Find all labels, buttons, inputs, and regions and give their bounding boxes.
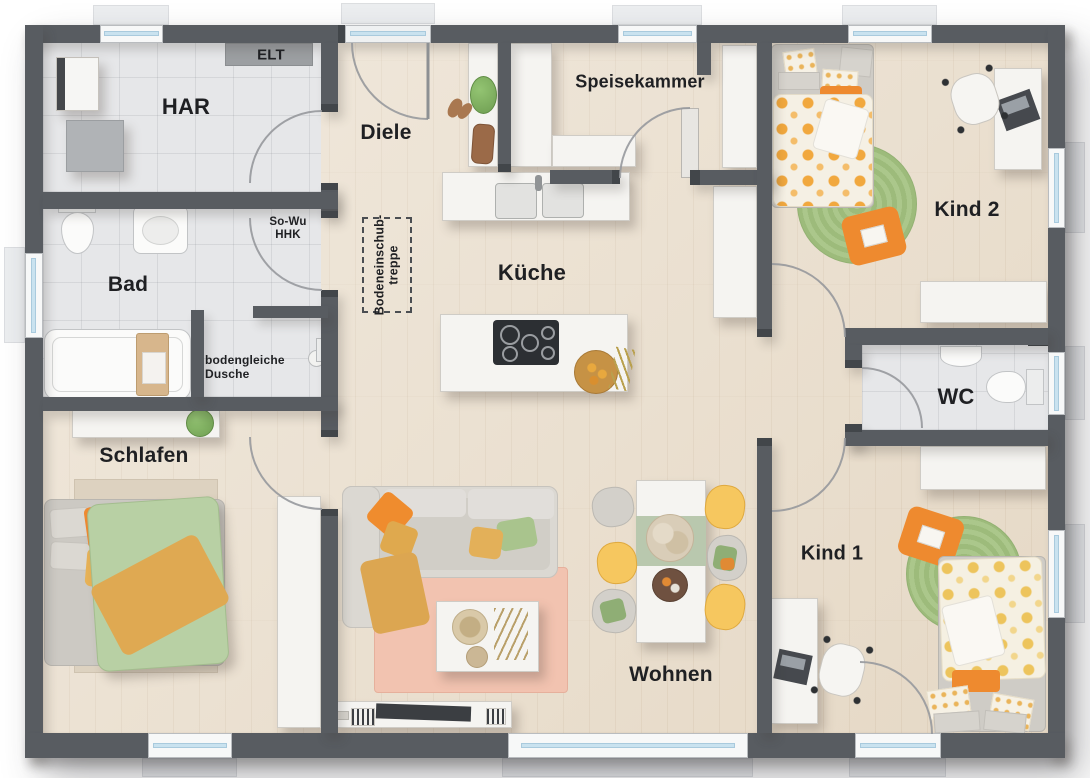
door-jamb — [757, 329, 772, 337]
shower-partition-vertical — [191, 310, 204, 397]
sofa-back-cushion — [468, 489, 554, 519]
window-sill — [612, 5, 702, 25]
door-jamb — [321, 509, 338, 516]
window-sill — [4, 247, 25, 343]
window-glass — [1054, 535, 1059, 612]
napkin-orange — [720, 558, 735, 571]
wc-toilet-tank — [1026, 369, 1044, 405]
door-jamb — [321, 104, 338, 112]
room-label-wohnen: Wohnen — [629, 663, 713, 687]
snack-bowl — [652, 568, 688, 602]
room-label-bad: Bad — [108, 273, 148, 297]
window-sill — [1065, 142, 1085, 233]
built-in-closet — [722, 45, 757, 168]
room-label-speisekammer: Speisekammer — [575, 72, 704, 93]
pantry-door-leaf — [681, 108, 699, 178]
bathroom-sink — [133, 205, 188, 254]
speaker-left — [351, 708, 375, 726]
window-sill — [842, 5, 937, 25]
napkin-green — [599, 597, 628, 624]
terrace-step — [502, 758, 753, 777]
wall-wohnen-kind1 — [757, 438, 772, 733]
kind2-dresser — [920, 281, 1047, 323]
window-glass — [1054, 356, 1059, 411]
window-glass — [104, 31, 159, 36]
floor-plan: HAR ELT Diele Speisekammer Kind 2 So-Wu … — [0, 0, 1090, 778]
wc-sink — [940, 346, 982, 367]
room-label-kueche: Küche — [498, 260, 566, 286]
window-glass — [1054, 153, 1059, 223]
window-sill — [1065, 346, 1085, 420]
window-sill — [93, 5, 169, 25]
entrance-step — [341, 3, 435, 24]
wall-wc-south — [845, 430, 1048, 446]
window-kind2-right — [1048, 148, 1065, 228]
window-har — [100, 25, 163, 43]
shower-partition-horizontal — [253, 306, 328, 318]
decor-vase — [466, 646, 488, 668]
wc-toilet-bowl — [986, 371, 1026, 403]
wall-hall-kind2 — [757, 43, 772, 337]
so-wu-hhk-label: So-Wu HHK — [269, 216, 306, 242]
wall-har-bad — [43, 192, 338, 209]
door-jamb — [321, 290, 338, 297]
window-kind1-right — [1048, 530, 1065, 618]
bathtub-caddy — [136, 333, 169, 396]
kind2-desk-chair — [945, 68, 1004, 130]
window-schlafen — [148, 733, 232, 758]
window-glass — [31, 258, 36, 333]
book — [917, 525, 945, 550]
room-label-har: HAR — [162, 94, 210, 120]
pantry-counter-horizontal — [552, 135, 636, 167]
door-jamb — [845, 424, 862, 432]
wardrobe-schlafen — [277, 496, 321, 728]
french-door-kind1 — [855, 733, 941, 758]
wall-diele-speisekammer — [498, 43, 511, 172]
window-wohnen — [508, 733, 748, 758]
door-jamb — [498, 164, 511, 172]
kind1-pillow-gray — [983, 710, 1027, 734]
wall-speisekammer-east-stub — [697, 43, 711, 75]
door-jamb — [612, 170, 620, 184]
wall-wc-north — [845, 328, 1048, 345]
kind2-pillow-gray — [778, 72, 820, 90]
wall-schlafen-wohnen — [321, 509, 338, 733]
room-label-schlafen: Schlafen — [99, 444, 188, 468]
kind1-duvet — [938, 556, 1046, 682]
room-label-kind1: Kind 1 — [801, 543, 863, 566]
window-glass — [350, 31, 426, 36]
entrance-door — [345, 25, 431, 43]
door-jamb — [845, 360, 862, 368]
window-wc — [1048, 352, 1065, 415]
window-glass — [153, 743, 227, 748]
decor-tray — [452, 609, 488, 645]
duvet-fold — [941, 594, 1006, 667]
door-jamb — [321, 211, 338, 218]
window-kind2-top — [848, 25, 932, 43]
door-jamb — [690, 170, 700, 185]
attic-stair-label: Bodeneinschub- treppe — [373, 215, 402, 316]
washing-machine — [56, 57, 99, 111]
centerpiece-flowers — [646, 514, 694, 562]
kind2-duvet — [773, 94, 873, 207]
shower-label: bodengleiche Dusche — [205, 353, 285, 382]
window-sill — [849, 758, 946, 777]
room-label-wc: WC — [937, 384, 974, 410]
window-bad — [25, 253, 43, 338]
window-glass — [623, 31, 692, 36]
window-glass — [853, 31, 927, 36]
wall-bad-schlafen — [43, 397, 338, 411]
room-label-diele: Diele — [360, 121, 411, 145]
kind1-pillow-gray — [933, 710, 980, 733]
door-jamb — [321, 183, 338, 190]
sink-basin — [542, 183, 584, 218]
wall-har-diele — [321, 43, 338, 112]
hallway-board — [471, 123, 496, 164]
plant — [470, 76, 497, 114]
book — [860, 224, 888, 247]
cooktop — [493, 320, 559, 365]
sink-basin — [495, 183, 537, 219]
wall-speisekammer-south-west — [550, 170, 620, 184]
window-glass — [860, 743, 936, 748]
dried-plant — [494, 608, 528, 660]
room-label-kind2: Kind 2 — [934, 198, 999, 222]
pillow-mustard — [468, 526, 504, 560]
duvet-fold — [812, 98, 871, 161]
utility-box — [66, 120, 124, 172]
door-jamb — [757, 438, 772, 446]
door-jamb — [321, 430, 338, 437]
window-glass — [521, 743, 735, 748]
window-sill — [142, 758, 237, 777]
speaker-right — [486, 708, 506, 725]
kind1-desk-chair — [814, 639, 869, 700]
wall-exterior-left — [25, 25, 43, 758]
bed-pillow — [49, 541, 90, 571]
plant — [186, 409, 214, 437]
hall-wardrobe — [713, 186, 757, 318]
faucet-icon — [535, 175, 542, 191]
window-speisekammer — [618, 25, 697, 43]
pantry-counter-vertical — [510, 43, 552, 167]
kind1-dresser — [920, 446, 1046, 490]
elt-label: ELT — [257, 47, 285, 64]
window-sill — [1065, 524, 1085, 623]
